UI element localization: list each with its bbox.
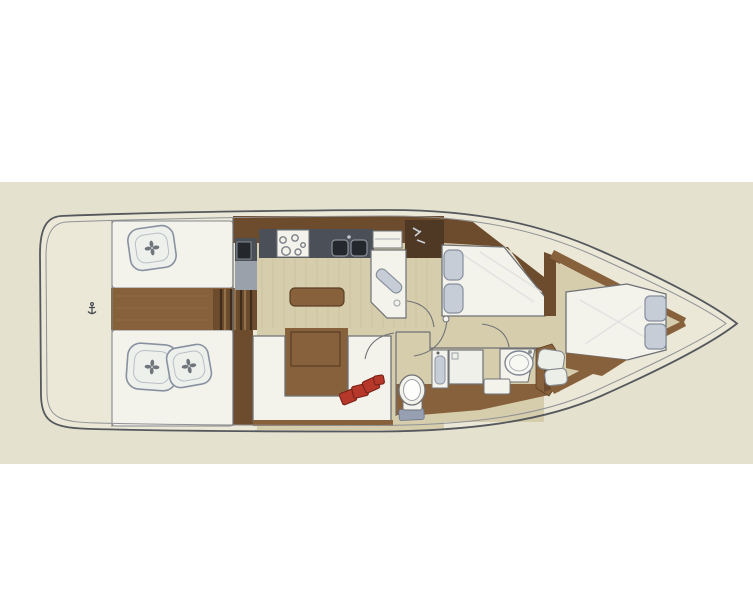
pillow <box>444 250 463 280</box>
shower-tray <box>435 356 445 384</box>
column-sink <box>237 242 251 259</box>
faucet-icon <box>347 235 351 239</box>
saloon-side-cabinet <box>233 330 253 425</box>
cockpit-cushion-3 <box>165 343 213 390</box>
yacht-floorplan-screenshot <box>0 0 753 600</box>
toilet <box>399 375 425 421</box>
saloon-table <box>290 288 344 306</box>
shower-cabinet <box>432 350 448 388</box>
cushion-shape <box>165 343 213 390</box>
table-footprint <box>285 328 348 396</box>
cockpit <box>88 220 257 427</box>
wet-locker <box>371 250 406 318</box>
pillow <box>645 324 666 349</box>
stove <box>277 230 309 257</box>
shower-control-icon <box>437 352 440 355</box>
faucet-icon <box>528 350 532 354</box>
toilet-seat <box>404 380 421 401</box>
sink-basin-2 <box>351 240 367 256</box>
companionway-steps <box>213 289 257 330</box>
pillow <box>444 284 463 313</box>
floorplan-canvas <box>0 0 753 600</box>
door-knob-icon <box>443 316 449 322</box>
locker-dark <box>405 220 444 258</box>
vanity-cabinet <box>484 379 510 394</box>
pillow <box>645 296 666 321</box>
fwd-seat <box>544 368 568 386</box>
sink-basin-1 <box>332 240 348 256</box>
shower-stall <box>449 350 483 384</box>
red-cushion <box>373 375 384 386</box>
cockpit-cushion-1 <box>126 224 177 272</box>
counter-endcap <box>235 261 257 290</box>
cushion-shape <box>126 224 177 272</box>
